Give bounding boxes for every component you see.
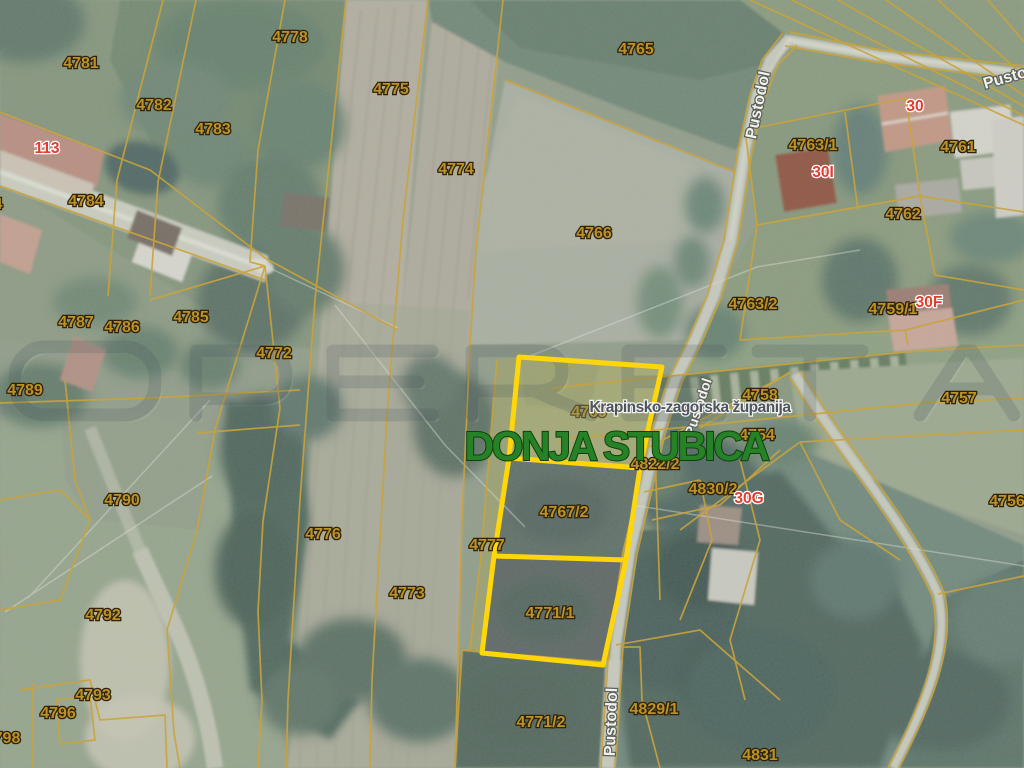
svg-text:798: 798 <box>0 730 20 747</box>
svg-text:Pustodol: Pustodol <box>602 688 621 757</box>
svg-text:DONJA STUBICA: DONJA STUBICA <box>464 423 769 469</box>
svg-text:4766: 4766 <box>576 225 612 242</box>
svg-text:113: 113 <box>34 140 59 157</box>
svg-text:4765: 4765 <box>618 41 654 58</box>
svg-text:4773: 4773 <box>389 585 425 602</box>
svg-text:4756: 4756 <box>989 493 1024 510</box>
svg-text:4792: 4792 <box>85 607 121 624</box>
svg-text:4781: 4781 <box>63 55 99 72</box>
svg-text:4777: 4777 <box>469 537 505 554</box>
svg-text:4793: 4793 <box>75 687 111 704</box>
svg-text:30: 30 <box>906 98 923 115</box>
svg-text:4761: 4761 <box>940 139 976 156</box>
svg-text:4771/2: 4771/2 <box>517 714 566 731</box>
svg-text:4757: 4757 <box>941 390 977 407</box>
svg-text:4774: 4774 <box>438 161 474 178</box>
svg-text:4789: 4789 <box>7 382 43 399</box>
svg-text:4763/1: 4763/1 <box>789 137 838 154</box>
svg-text:30I: 30I <box>812 164 834 181</box>
svg-text:4782: 4782 <box>136 97 172 114</box>
svg-text:4767/2: 4767/2 <box>540 504 589 521</box>
svg-text:4796: 4796 <box>40 705 76 722</box>
svg-text:4786: 4786 <box>104 319 140 336</box>
svg-text:4787: 4787 <box>58 314 94 331</box>
svg-text:4778: 4778 <box>272 29 308 46</box>
svg-text:4829/1: 4829/1 <box>630 701 679 718</box>
svg-text:4831: 4831 <box>742 747 778 764</box>
svg-text:4759/1: 4759/1 <box>869 301 918 318</box>
svg-text:4776: 4776 <box>305 526 341 543</box>
svg-text:4783: 4783 <box>195 121 231 138</box>
svg-text:4785: 4785 <box>173 309 209 326</box>
svg-text:4771/1: 4771/1 <box>526 605 575 622</box>
svg-text:Krapinsko-zagorska županija: Krapinsko-zagorska županija <box>590 399 792 416</box>
svg-text:30F: 30F <box>916 294 943 311</box>
svg-text:4790: 4790 <box>104 492 140 509</box>
svg-text:30G: 30G <box>734 490 763 507</box>
svg-text:4775: 4775 <box>373 81 409 98</box>
svg-text:4763/2: 4763/2 <box>729 296 778 313</box>
svg-text:4762: 4762 <box>885 206 921 223</box>
svg-text:4772: 4772 <box>256 345 292 362</box>
svg-text:4784: 4784 <box>68 193 104 210</box>
svg-text:4830/2: 4830/2 <box>689 481 738 498</box>
svg-text:4: 4 <box>0 196 3 213</box>
